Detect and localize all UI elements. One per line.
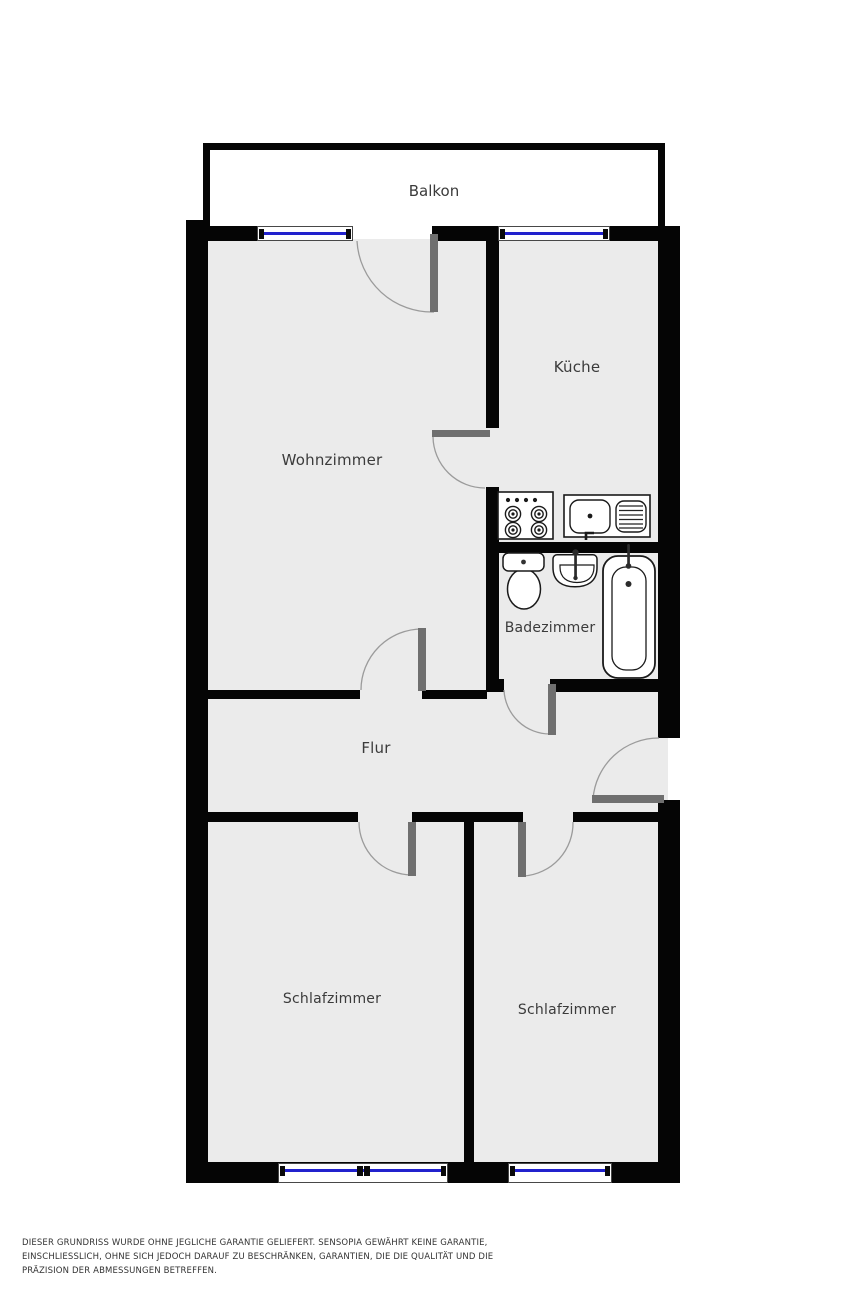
wall-kueche-bad — [486, 542, 658, 553]
wall-right-lower — [658, 800, 680, 1183]
room-flur — [207, 691, 658, 816]
window-mullion — [364, 1166, 370, 1176]
wall-top-right-segment — [610, 226, 680, 241]
entrance-threshold — [658, 738, 668, 800]
window-glass — [282, 1169, 444, 1172]
wall-schlafzimmer-divider — [464, 822, 474, 1162]
schlafzimmer-rechts-label: Schlafzimmer — [518, 1002, 616, 1018]
room-kueche — [499, 239, 658, 549]
window-glass — [502, 232, 606, 235]
wall-wohnzimmer-flur-right — [422, 690, 487, 699]
wall-left — [186, 220, 208, 1183]
disclaimer-text: DIESER GRUNDRISS WURDE OHNE JEGLICHE GAR… — [22, 1236, 502, 1278]
wall-right-upper — [658, 226, 680, 738]
disclaimer-line: DIESER GRUNDRISS WURDE OHNE JEGLICHE GAR… — [22, 1236, 502, 1250]
wall-wohnzimmer-bad-lower — [486, 487, 499, 692]
window-schlafzimmer-rechts — [508, 1163, 612, 1183]
flur-label: Flur — [361, 739, 390, 757]
window-glass — [261, 232, 349, 235]
schlafzimmer-links-label: Schlafzimmer — [283, 991, 381, 1007]
window-cap — [280, 1166, 285, 1176]
disclaimer-line: PRÄZISION DER ABMESSUNGEN BETREFFEN. — [22, 1264, 502, 1278]
window-schlafzimmer-links — [278, 1163, 448, 1183]
room-wohnzimmer — [207, 239, 499, 699]
room-schlafzimmer-links — [207, 814, 464, 1165]
window-cap — [603, 229, 608, 239]
window-wohnzimmer — [257, 226, 353, 241]
wall-wohnzimmer-flur-left — [207, 690, 360, 699]
wall-top-left-segment — [186, 226, 257, 241]
window-cap — [510, 1166, 515, 1176]
balkon-label: Balkon — [409, 182, 460, 200]
window-cap — [605, 1166, 610, 1176]
wall-bad-flur-right — [550, 679, 658, 692]
wall-top-middle-segment — [432, 226, 498, 241]
disclaimer-line: EINSCHLIESSLICH, OHNE SICH JEDOCH DARAUF… — [22, 1250, 502, 1264]
window-cap — [441, 1166, 446, 1176]
wall-bad-flur-left — [486, 679, 504, 692]
floor-plan: Balkon — [0, 0, 867, 1300]
kueche-label: Küche — [554, 358, 601, 376]
window-cap — [259, 229, 264, 239]
wall-wohnzimmer-kueche-upper — [486, 241, 499, 428]
window-cap — [346, 229, 351, 239]
room-schlafzimmer-rechts — [474, 814, 658, 1165]
badezimmer-label: Badezimmer — [505, 620, 596, 636]
window-glass — [512, 1169, 608, 1172]
wohnzimmer-label: Wohnzimmer — [282, 451, 383, 469]
room-balkon: Balkon — [203, 143, 665, 232]
wall-flur-schlafzimmer-left — [207, 812, 358, 822]
wall-flur-schlafzimmer-middle — [412, 812, 523, 822]
wall-flur-schlafzimmer-right — [573, 812, 680, 822]
window-kueche — [498, 226, 610, 241]
window-cap — [500, 229, 505, 239]
window-mullion — [357, 1166, 363, 1176]
